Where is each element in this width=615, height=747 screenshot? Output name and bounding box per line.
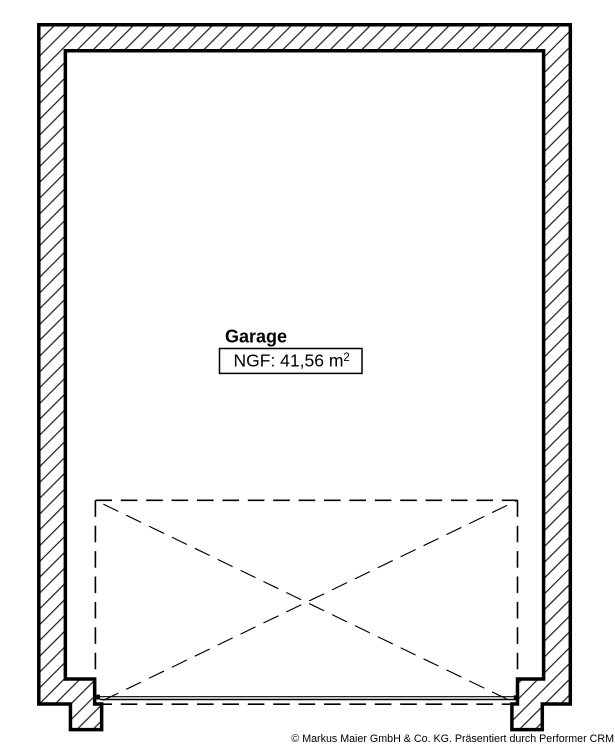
svg-text:© Markus Maier GmbH & Co. KG.: © Markus Maier GmbH & Co. KG. Präsentier… xyxy=(291,733,614,745)
svg-text:NGF: 41,56 m2: NGF: 41,56 m2 xyxy=(234,351,350,371)
svg-text:Garage: Garage xyxy=(225,327,287,347)
